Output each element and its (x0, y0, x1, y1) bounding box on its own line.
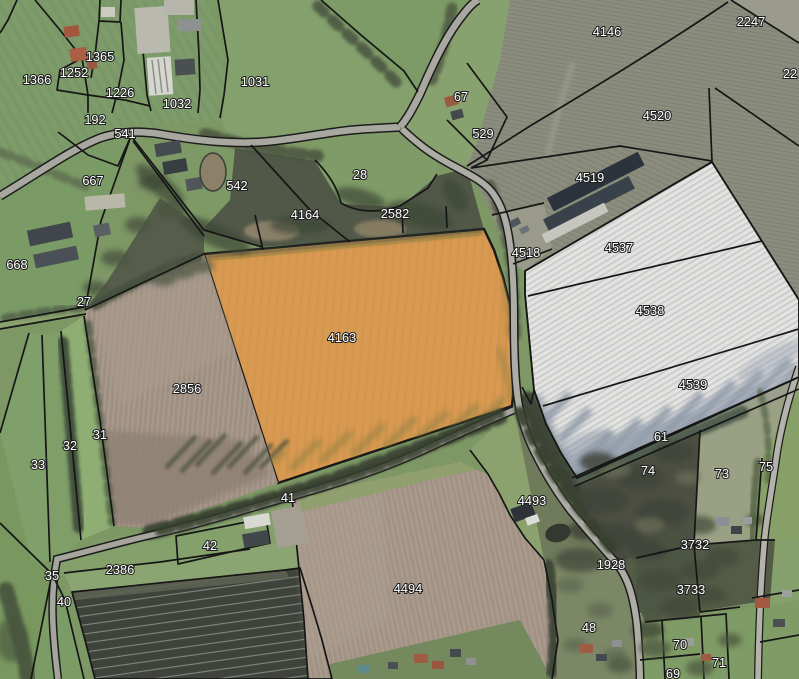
svg-text:667: 667 (82, 173, 103, 188)
svg-text:27: 27 (77, 294, 91, 309)
svg-text:4518: 4518 (512, 245, 540, 260)
svg-text:1365: 1365 (86, 49, 114, 64)
svg-text:4146: 4146 (593, 24, 621, 39)
svg-text:70: 70 (673, 637, 687, 652)
svg-text:73: 73 (715, 466, 729, 481)
svg-text:4494: 4494 (394, 581, 422, 596)
svg-text:28: 28 (353, 167, 367, 182)
svg-text:3732: 3732 (681, 537, 709, 552)
svg-text:67: 67 (454, 89, 468, 104)
svg-text:61: 61 (654, 429, 668, 444)
svg-text:668: 668 (6, 257, 27, 272)
svg-text:40: 40 (57, 594, 71, 609)
svg-text:2386: 2386 (106, 562, 134, 577)
svg-text:32: 32 (63, 438, 77, 453)
svg-text:529: 529 (472, 126, 493, 141)
svg-text:4493: 4493 (518, 493, 546, 508)
svg-text:48: 48 (582, 620, 596, 635)
svg-text:3733: 3733 (677, 582, 705, 597)
svg-text:1031: 1031 (241, 74, 269, 89)
svg-text:2247: 2247 (737, 14, 765, 29)
svg-text:4537: 4537 (605, 240, 633, 255)
svg-text:4539: 4539 (679, 377, 707, 392)
svg-text:541: 541 (114, 126, 135, 141)
svg-text:1928: 1928 (597, 557, 625, 572)
svg-text:41: 41 (281, 490, 295, 505)
svg-text:4163: 4163 (328, 330, 356, 345)
svg-text:4520: 4520 (643, 108, 671, 123)
svg-text:4538: 4538 (636, 303, 664, 318)
svg-text:4164: 4164 (291, 207, 319, 222)
svg-text:35: 35 (45, 568, 59, 583)
svg-text:1252: 1252 (60, 65, 88, 80)
svg-text:1366: 1366 (23, 72, 51, 87)
svg-text:2856: 2856 (173, 381, 201, 396)
svg-text:4519: 4519 (576, 170, 604, 185)
svg-text:69: 69 (666, 666, 680, 679)
svg-text:22: 22 (783, 66, 797, 81)
svg-text:542: 542 (226, 178, 247, 193)
svg-text:31: 31 (93, 427, 107, 442)
svg-text:1226: 1226 (106, 85, 134, 100)
svg-text:75: 75 (759, 459, 773, 474)
svg-text:33: 33 (31, 457, 45, 472)
svg-text:74: 74 (641, 463, 655, 478)
svg-text:42: 42 (203, 538, 217, 553)
svg-text:192: 192 (84, 112, 105, 127)
svg-text:2582: 2582 (381, 206, 409, 221)
svg-text:1032: 1032 (163, 96, 191, 111)
svg-text:71: 71 (712, 655, 726, 670)
